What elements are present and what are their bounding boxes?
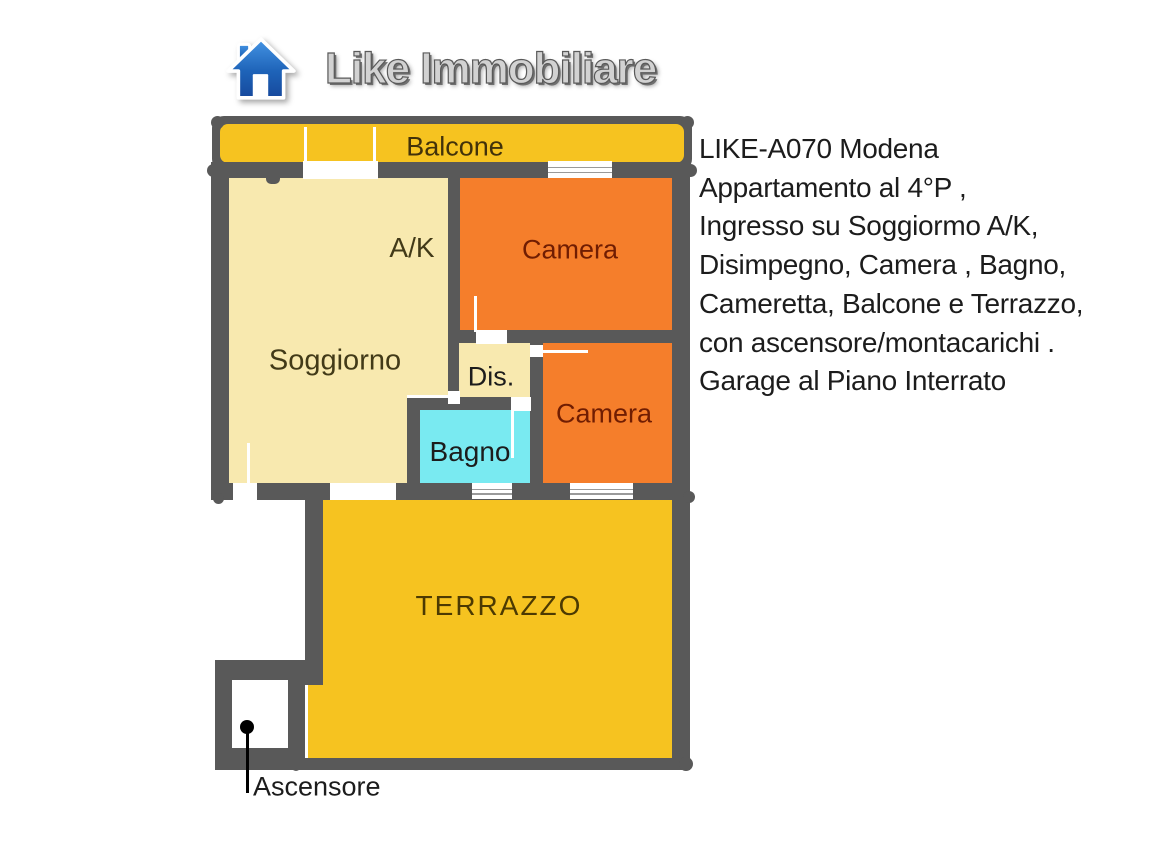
wall-cap-dot: [213, 493, 224, 504]
description-line: con ascensore/montacarichi .: [699, 324, 1139, 363]
window-glazing: [570, 493, 633, 495]
wall-terrazzo-left: [305, 500, 323, 685]
window-camera-top: [548, 161, 612, 178]
room-terrazzo: [308, 685, 323, 758]
label-balcone: Balcone: [406, 132, 504, 163]
door-entrance: [233, 483, 257, 500]
house-icon: [225, 35, 297, 103]
label-terrazzo: TERRAZZO: [416, 590, 583, 622]
door-leaf: [247, 443, 250, 485]
floorplan-page: Like Immobiliare: [0, 0, 1162, 854]
label-ascensore: Ascensore: [253, 772, 381, 803]
wall-cap-dot: [681, 116, 694, 129]
window-bagno: [472, 483, 512, 499]
door-jamb: [304, 127, 307, 163]
door-camera-top: [476, 330, 507, 344]
door-camera-bottom: [530, 345, 543, 357]
door-leaf: [511, 410, 514, 458]
wall-terrazzo-right: [672, 500, 690, 770]
door-leaf: [474, 296, 477, 332]
room-terrazzo: [323, 500, 672, 758]
label-soggiorno: Soggiorno: [269, 345, 401, 378]
brand-name: Like Immobiliare: [325, 44, 656, 94]
door-bagno: [511, 397, 531, 411]
label-camera-top: Camera: [522, 235, 618, 266]
wall-cap-dot: [683, 491, 695, 503]
door-jamb: [373, 127, 376, 163]
label-camera-bottom: Camera: [556, 399, 652, 430]
description-line: Ingresso su Soggiormo A/K,: [699, 207, 1139, 246]
brand-header: Like Immobiliare: [225, 34, 656, 104]
window-glazing: [570, 489, 633, 491]
door-leaf: [407, 395, 450, 398]
description-line: Appartamento al 4°P ,: [699, 169, 1139, 208]
description-line: Garage al Piano Interrato: [699, 362, 1139, 401]
room-ascensore: [232, 680, 288, 748]
window-camera-bottom: [570, 483, 633, 499]
description-line: LIKE-A070 Modena: [699, 130, 1139, 169]
description-line: Cameretta, Balcone e Terrazzo,: [699, 285, 1139, 324]
ascensore-pointer-line: [246, 727, 250, 793]
window-glazing: [548, 172, 612, 174]
door-terrazzo: [330, 483, 396, 500]
wall-cap-dot: [679, 757, 693, 771]
door-leaf: [543, 350, 588, 353]
window-glazing: [548, 167, 612, 169]
description-line: Disimpegno, Camera , Bagno,: [699, 246, 1139, 285]
label-dis: Dis.: [468, 362, 515, 393]
label-ak: A/K: [389, 232, 434, 264]
wall-cap-dot: [211, 116, 224, 129]
window-glazing: [472, 493, 512, 495]
wall-stub: [266, 175, 280, 184]
room-soggiorno: [229, 397, 407, 483]
window-glazing: [472, 489, 512, 491]
label-bagno: Bagno: [430, 436, 511, 468]
listing-description: LIKE-A070 Modena Appartamento al 4°P , I…: [699, 130, 1139, 401]
door-balcone-soggiorno: [303, 161, 378, 179]
